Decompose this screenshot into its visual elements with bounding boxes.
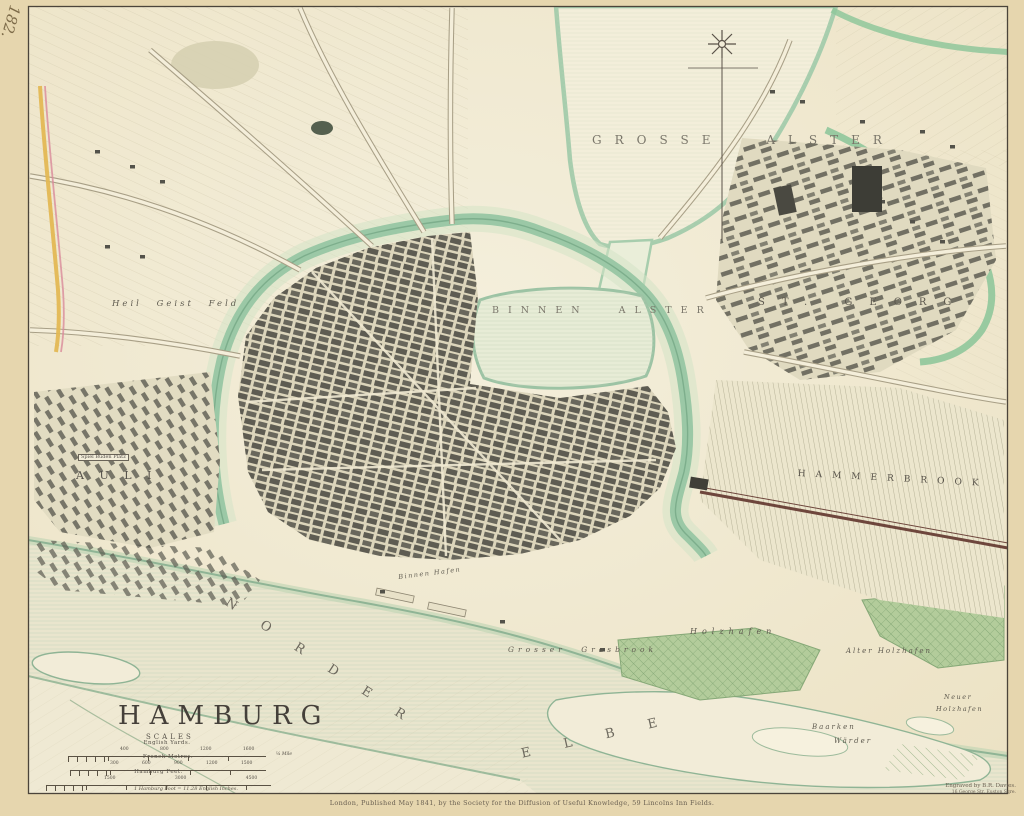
scalebar-label: English Yards.: [144, 740, 191, 746]
label-grosser-grasbrook: Grosser Grasbrook: [508, 646, 657, 654]
label-grosse-alster: GROSSE ALSTER: [592, 134, 895, 146]
engraver-line1: Engraved by B.R. Davies.: [945, 783, 1016, 789]
scalebar-label: Hamburg Feet.: [134, 769, 183, 775]
label-st-georg: ST. GEORG: [758, 298, 968, 308]
label-binnen-alster: BINNEN ALSTER: [492, 306, 713, 316]
binnen-alster-shading: [473, 288, 654, 388]
label-baarken: Baarken: [812, 724, 856, 731]
scalebar-endnote: ¼ Mile: [276, 752, 292, 757]
label-neuer-holzhafen-2: Holzhafen: [936, 706, 983, 713]
engraver-line2: 16 George Str. Euston Sqre.: [945, 790, 1016, 795]
label-st-pauli: A U L I: [76, 470, 157, 481]
scalebar-ticks: 1500 3000 4500: [104, 776, 257, 781]
map-title: HAMBURG: [118, 701, 330, 731]
scalebar-ticks: 300 600 900 1200 1500: [110, 761, 252, 766]
scalebar-label: French Metres.: [143, 754, 193, 760]
publication-imprint: London, Published May 1841, by the Socie…: [262, 799, 782, 807]
pond-sternschanze: [311, 121, 333, 135]
scalebar-ticks: 400 800 1200 1600: [120, 747, 254, 752]
label-warder: Wärder: [834, 738, 872, 745]
label-neuer-holzhafen-1: Neuer: [944, 694, 972, 701]
label-holzhafen: Holzhafen: [690, 628, 776, 636]
label-alter-holzhafen: Alter Holzhafen: [846, 648, 932, 655]
engraver-credit: Engraved by B.R. Davies. 16 George Str. …: [945, 783, 1016, 795]
label-heil-geist-feld: Heil Geist Feld: [112, 300, 239, 309]
map-artwork: [0, 0, 1024, 816]
scale-footnote: 1 Hamburg Foot = 11.28 English Inches.: [108, 786, 264, 792]
map-sheet: 182. GROSSE ALSTER BINNEN ALSTER NORDER …: [0, 0, 1024, 816]
label-spiel-buden-platz: Spiel Buden Platz: [78, 454, 129, 461]
